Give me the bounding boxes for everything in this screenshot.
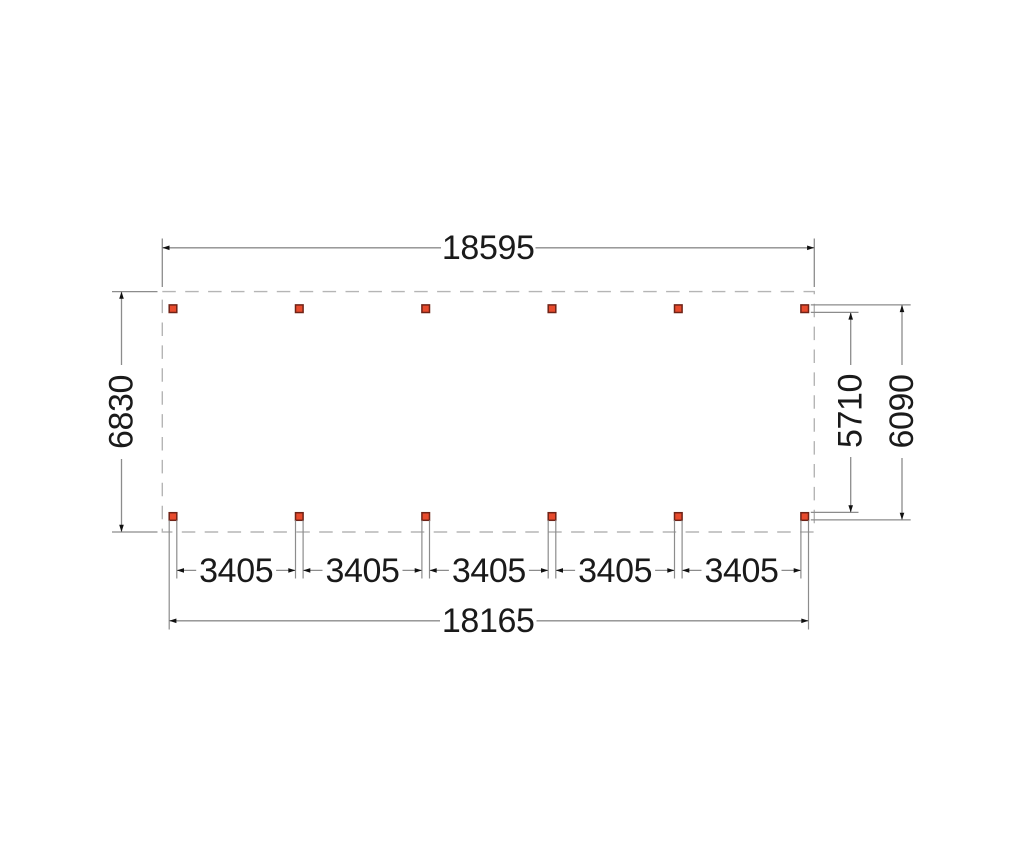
svg-text:3405: 3405 [199, 552, 273, 590]
svg-text:6090: 6090 [883, 374, 921, 448]
svg-text:3405: 3405 [704, 552, 778, 590]
svg-text:3405: 3405 [452, 552, 526, 590]
svg-text:18165: 18165 [442, 602, 535, 640]
svg-text:3405: 3405 [325, 552, 399, 590]
svg-text:5710: 5710 [832, 374, 870, 448]
svg-text:6830: 6830 [103, 375, 141, 449]
svg-text:3405: 3405 [578, 552, 652, 590]
svg-text:18595: 18595 [442, 229, 535, 267]
